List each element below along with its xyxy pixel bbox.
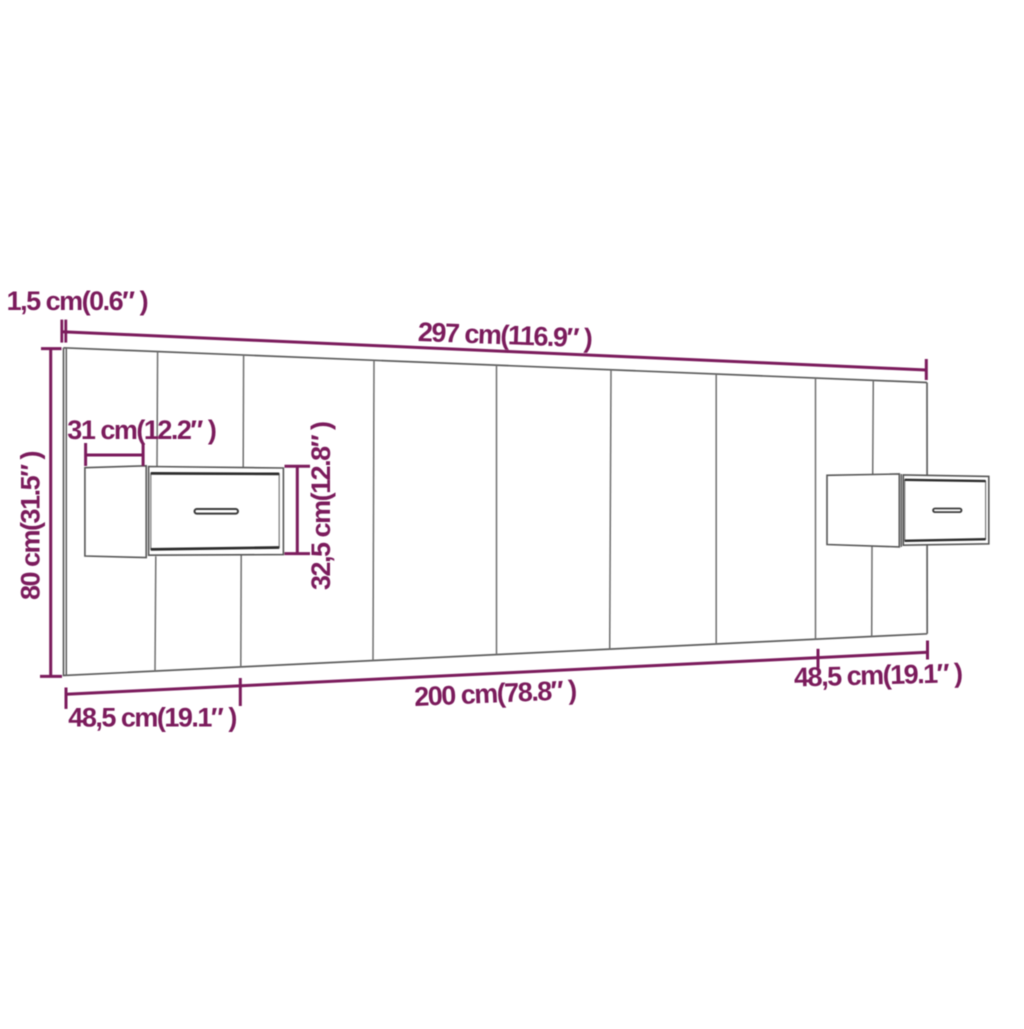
svg-text:297 cm(116.9″ ): 297 cm(116.9″ )	[417, 317, 592, 353]
svg-text:48,5 cm(19.1″ ): 48,5 cm(19.1″ )	[794, 658, 963, 692]
svg-text:32,5 cm(12.8″ ): 32,5 cm(12.8″ )	[306, 422, 336, 590]
svg-text:31 cm(12.2″ ): 31 cm(12.2″ )	[67, 415, 216, 445]
svg-text:48,5 cm(19.1″ ): 48,5 cm(19.1″ )	[68, 703, 236, 733]
svg-text:1,5 cm(0.6″ ): 1,5 cm(0.6″ )	[7, 286, 148, 316]
svg-text:80 cm(31.5″ ): 80 cm(31.5″ )	[16, 451, 46, 600]
